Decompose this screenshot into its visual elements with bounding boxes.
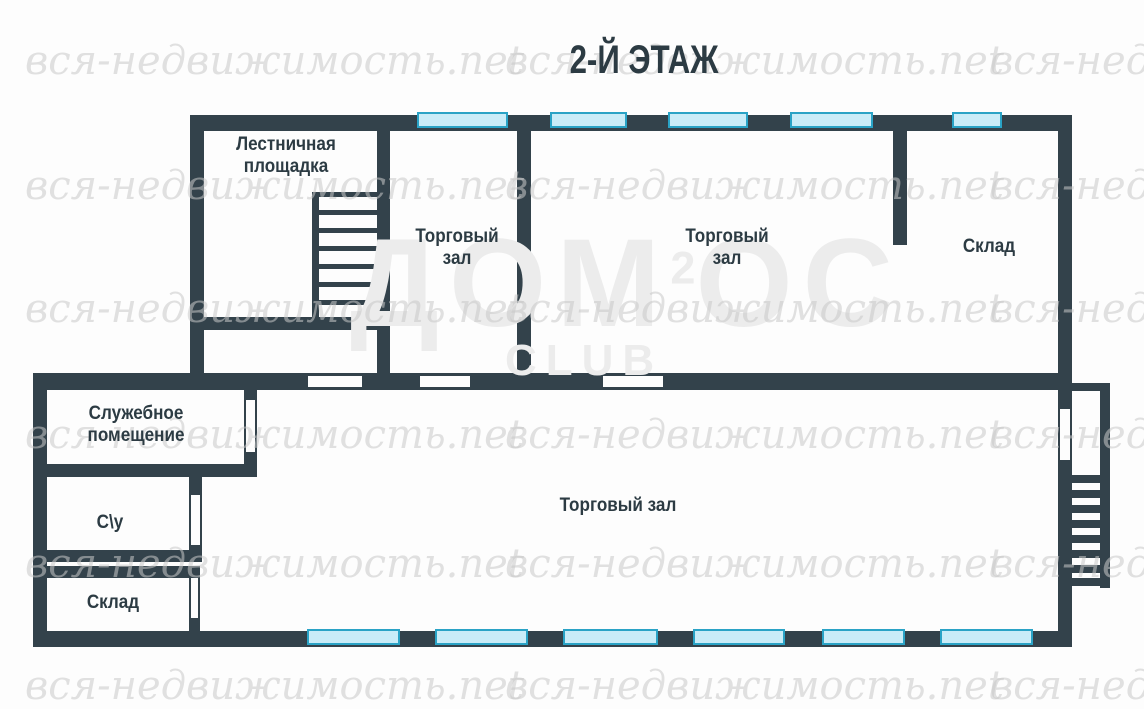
window	[790, 112, 873, 128]
watermark-text: вся-недвижимость.net	[505, 412, 1004, 458]
room-label-stair-landing: Лестничная площадка	[214, 134, 358, 178]
exterior-staircase-rail	[1100, 383, 1110, 588]
window	[435, 629, 528, 645]
wall-top-right-outer	[1058, 115, 1072, 390]
stair-step	[319, 192, 380, 197]
window	[668, 112, 748, 128]
wall-service-room-bottom	[33, 464, 257, 477]
door-opening	[420, 376, 470, 387]
door-opening	[246, 400, 255, 452]
stair-step	[319, 228, 380, 233]
wall-storage-bottom-top	[33, 566, 200, 578]
door-opening	[191, 578, 198, 618]
room-label-service-room: Служебное помещение	[73, 403, 199, 447]
stair-step	[1068, 490, 1100, 498]
stair-step	[1068, 578, 1100, 586]
stair-step	[1068, 505, 1100, 513]
watermark-text: вся-недвижимость.net	[990, 38, 1144, 84]
window	[563, 629, 658, 645]
window	[822, 629, 905, 645]
room-label-storage-top: Склад	[935, 236, 1043, 258]
window	[952, 112, 1002, 128]
window	[550, 112, 627, 128]
room-label-wc: С\у	[65, 512, 155, 534]
room-label-sales-hall-top-small: Торговый зал	[403, 226, 511, 270]
wall-bottom-left-outer	[33, 373, 47, 647]
door-opening	[191, 495, 200, 545]
wall-top-outer	[190, 115, 1072, 131]
watermark-text: вся-недвижимость.net	[990, 663, 1144, 709]
wall-middle	[33, 373, 1072, 390]
watermark-text: вся-недвижимость.net	[25, 38, 524, 84]
stair-step	[1068, 550, 1100, 558]
wall-storage-partial	[893, 131, 907, 245]
stair-step	[319, 300, 380, 305]
wall-stair-room-right	[377, 115, 390, 390]
door-opening	[603, 376, 663, 387]
room-label-sales-hall-top-large: Торговый зал	[673, 226, 781, 270]
stair-step	[319, 282, 380, 287]
window	[940, 629, 1033, 645]
stair-step	[1068, 520, 1100, 528]
room-label-storage-bottom: Склад	[64, 592, 163, 614]
interior-staircase-rail	[312, 192, 319, 322]
room-label-sales-hall-main: Торговый зал	[519, 495, 717, 517]
door-opening	[1060, 409, 1070, 460]
plan-title: 2-Й ЭТАЖ	[527, 38, 761, 83]
door-opening	[308, 376, 362, 387]
stair-step	[319, 264, 380, 269]
window	[307, 629, 400, 645]
window	[693, 629, 785, 645]
stair-step	[1068, 565, 1100, 573]
watermark-text: вся-недвижимость.net	[25, 541, 524, 587]
stair-step	[1068, 475, 1100, 483]
watermark-text: вся-недвижимость.net	[505, 541, 1004, 587]
watermark-text: вся-недвижимость.net	[505, 286, 1004, 332]
window	[417, 112, 508, 128]
wall-wc-bottom	[33, 550, 202, 562]
stair-step	[319, 246, 380, 251]
watermark-text: вся-недвижимость.net	[505, 663, 1004, 709]
floor-plan: 2-Й ЭТАЖ ДОМ2ОС CLUB	[0, 0, 1144, 702]
wall-stair-room-bottom	[204, 317, 390, 330]
stair-step	[1068, 535, 1100, 543]
watermark-text: вся-недвижимость.net	[25, 663, 524, 709]
stair-step	[319, 210, 380, 215]
wall-halls-divider	[517, 115, 531, 390]
watermark-text: вся-недвижимость.net	[505, 163, 1004, 209]
wall-top-left-outer	[190, 115, 204, 390]
